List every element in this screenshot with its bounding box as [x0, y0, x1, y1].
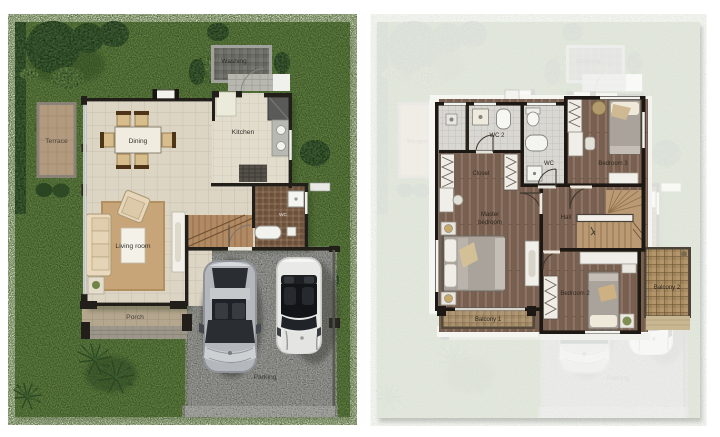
svg-text:Balcony 1: Balcony 1: [475, 317, 502, 323]
svg-text:Balcony 2: Balcony 2: [654, 285, 681, 291]
svg-text:Hall: Hall: [561, 215, 571, 221]
svg-text:bedroom: bedroom: [478, 220, 502, 226]
svg-text:Bedroom 2: Bedroom 2: [560, 291, 590, 297]
svg-text:Closet: Closet: [472, 171, 489, 177]
svg-text:WC 2: WC 2: [490, 133, 506, 139]
svg-text:WC: WC: [544, 161, 555, 167]
svg-text:Master: Master: [481, 212, 499, 218]
svg-text:Bedroom 3: Bedroom 3: [598, 161, 628, 167]
